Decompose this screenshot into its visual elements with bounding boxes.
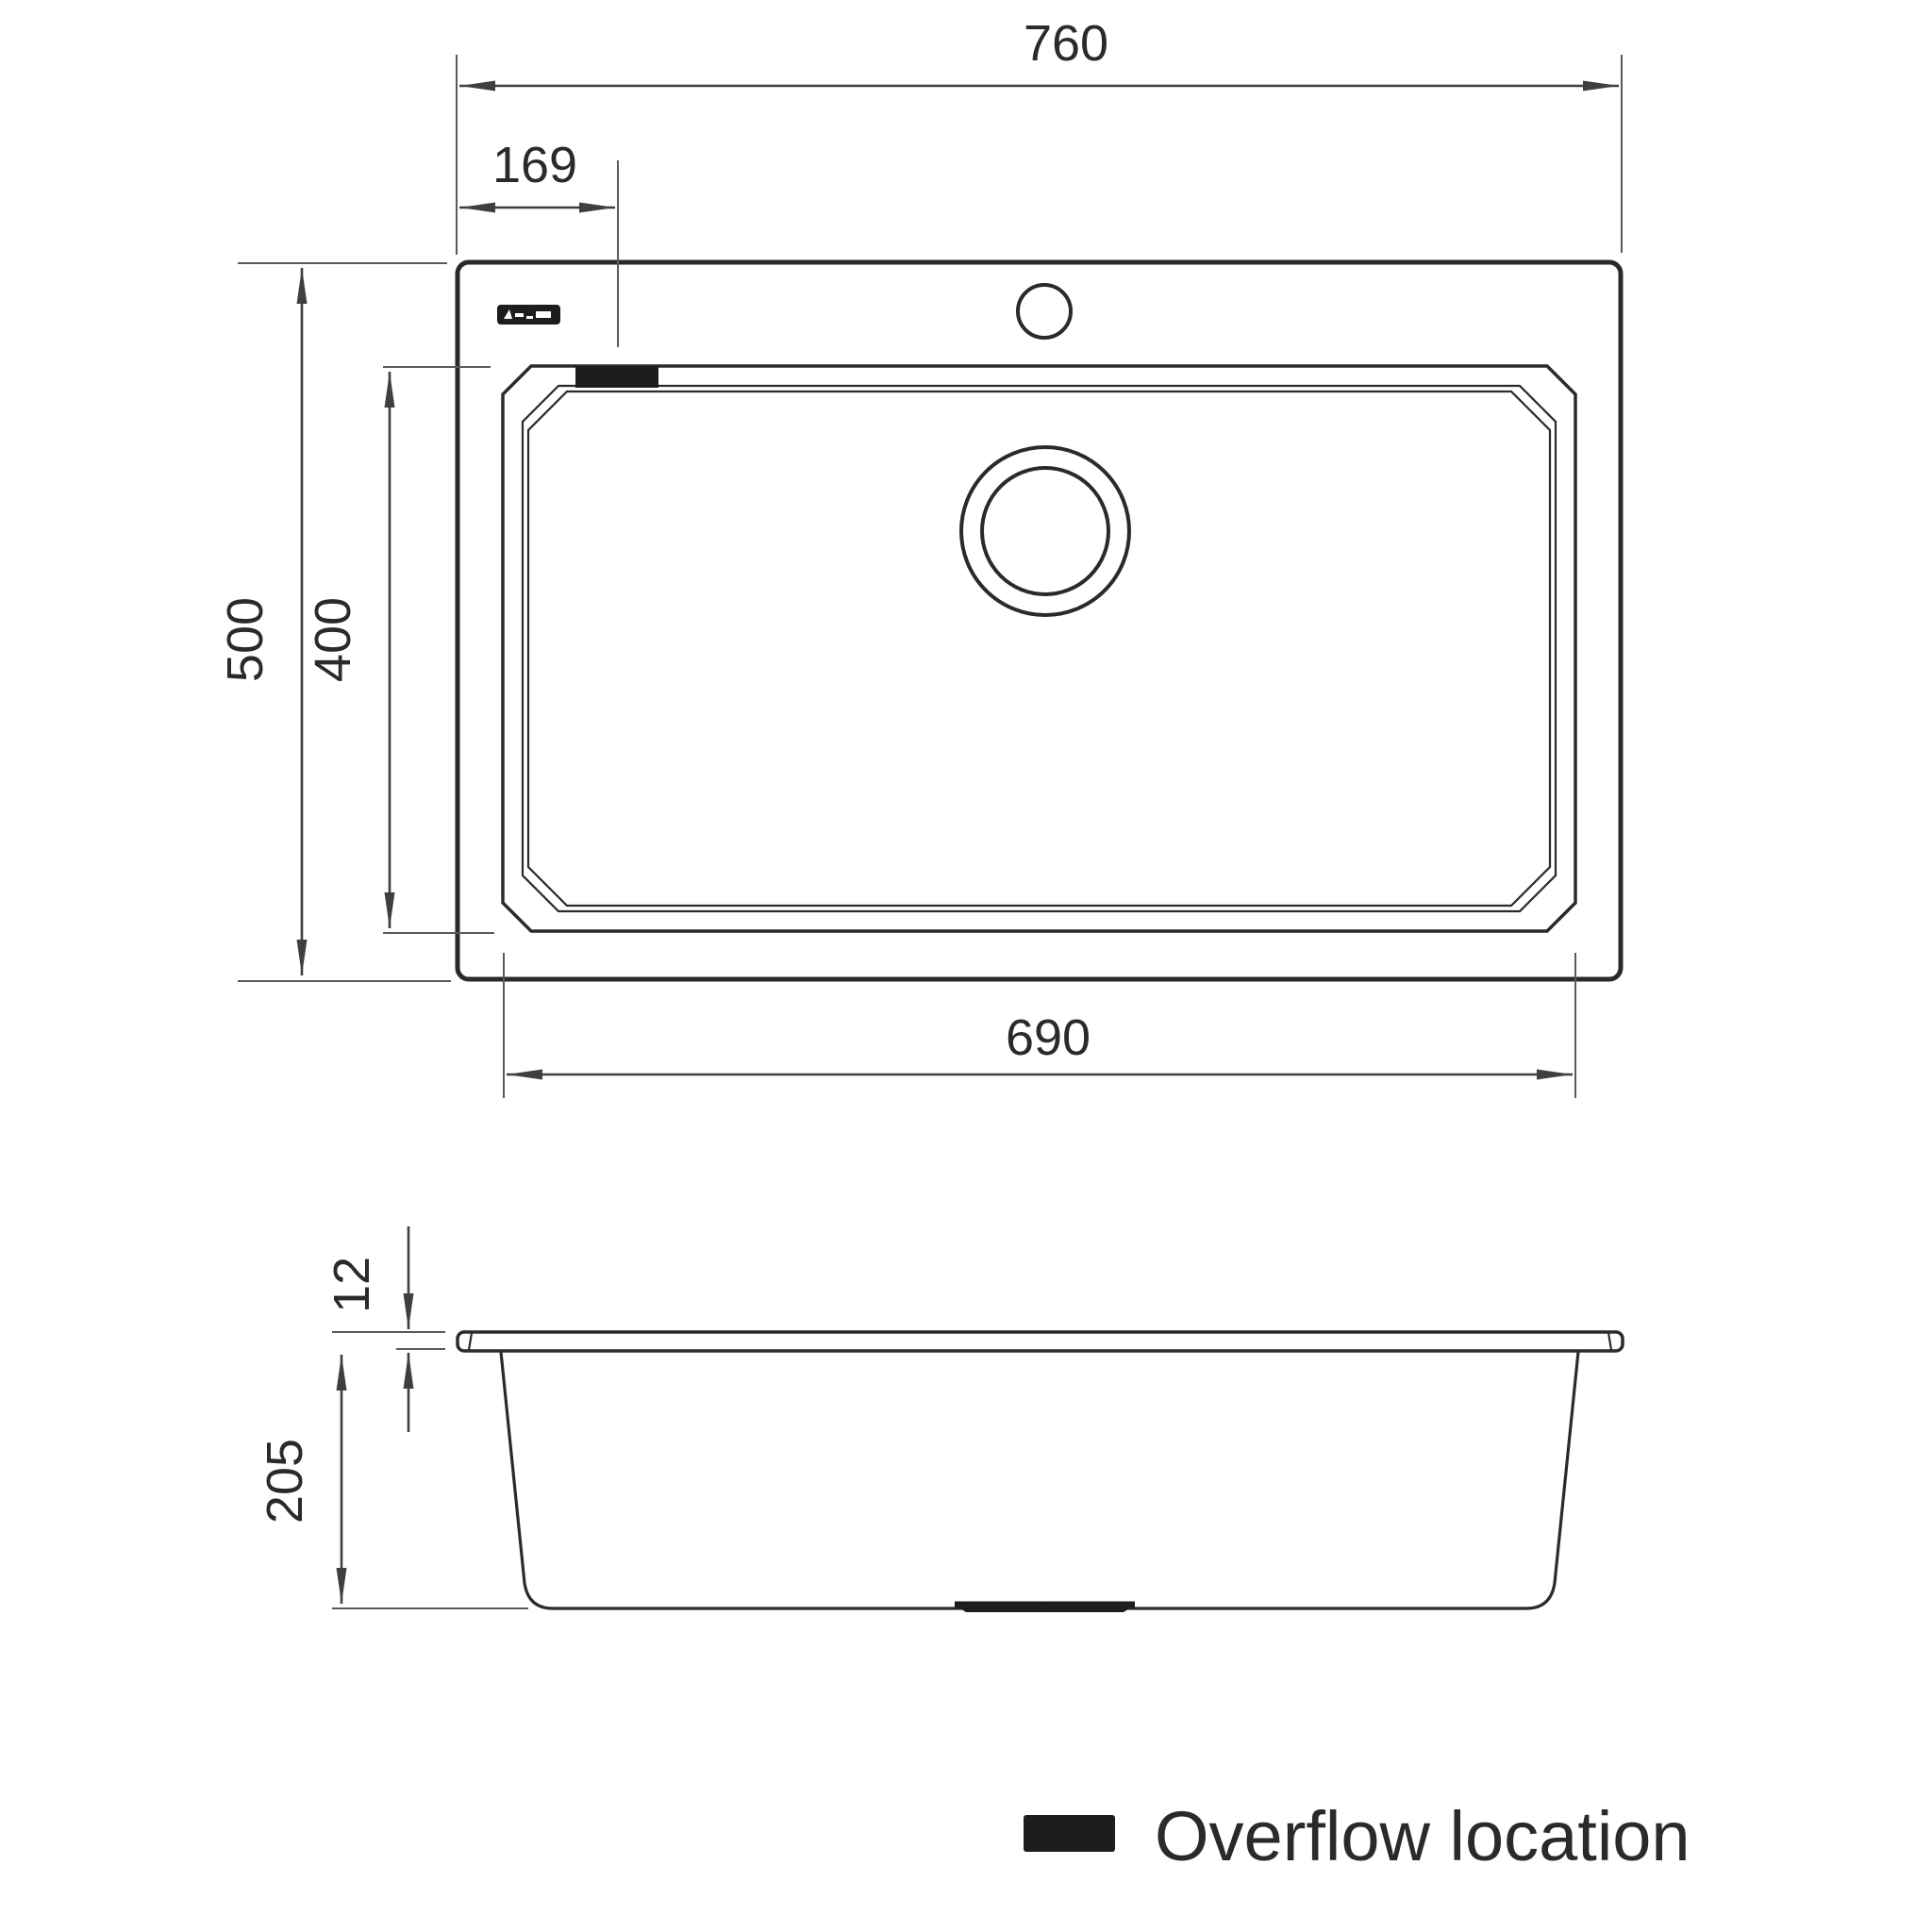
legend-label: Overflow location <box>1155 1797 1690 1875</box>
dim-label: 12 <box>324 1257 380 1313</box>
brand-logo-icon <box>497 305 560 325</box>
dim-label: 400 <box>305 597 361 682</box>
legend: Overflow location <box>1024 1797 1690 1875</box>
bowl-profile <box>501 1352 1578 1608</box>
faucet-hole <box>1018 285 1071 338</box>
dim-label: 205 <box>257 1439 313 1524</box>
rim-profile <box>458 1332 1623 1351</box>
drain <box>961 447 1129 615</box>
drain-outer-ring <box>961 447 1129 615</box>
rim-end-line-right <box>1608 1333 1611 1350</box>
overflow-marker <box>575 366 658 388</box>
drain-inner-ring <box>982 468 1108 594</box>
dim-690: 690 <box>504 953 1575 1098</box>
dim-label: 500 <box>217 597 274 682</box>
top-view: 760 169 500 400 690 <box>217 15 1622 1098</box>
dim-label: 169 <box>492 137 577 193</box>
dim-label: 760 <box>1024 15 1108 72</box>
bowl-rim-mid <box>523 386 1556 911</box>
dim-label: 690 <box>1006 1009 1091 1066</box>
drain-boss <box>955 1605 1135 1612</box>
dim-205: 205 <box>257 1355 528 1608</box>
rim-end-line-left <box>469 1333 472 1350</box>
legend-swatch <box>1024 1815 1115 1852</box>
dim-400: 400 <box>305 367 494 933</box>
dim-760: 760 <box>457 15 1622 255</box>
technical-drawing: 760 169 500 400 690 <box>0 0 1932 1932</box>
bowl-rim-outer <box>503 366 1575 931</box>
side-view: 12 205 <box>257 1226 1623 1612</box>
